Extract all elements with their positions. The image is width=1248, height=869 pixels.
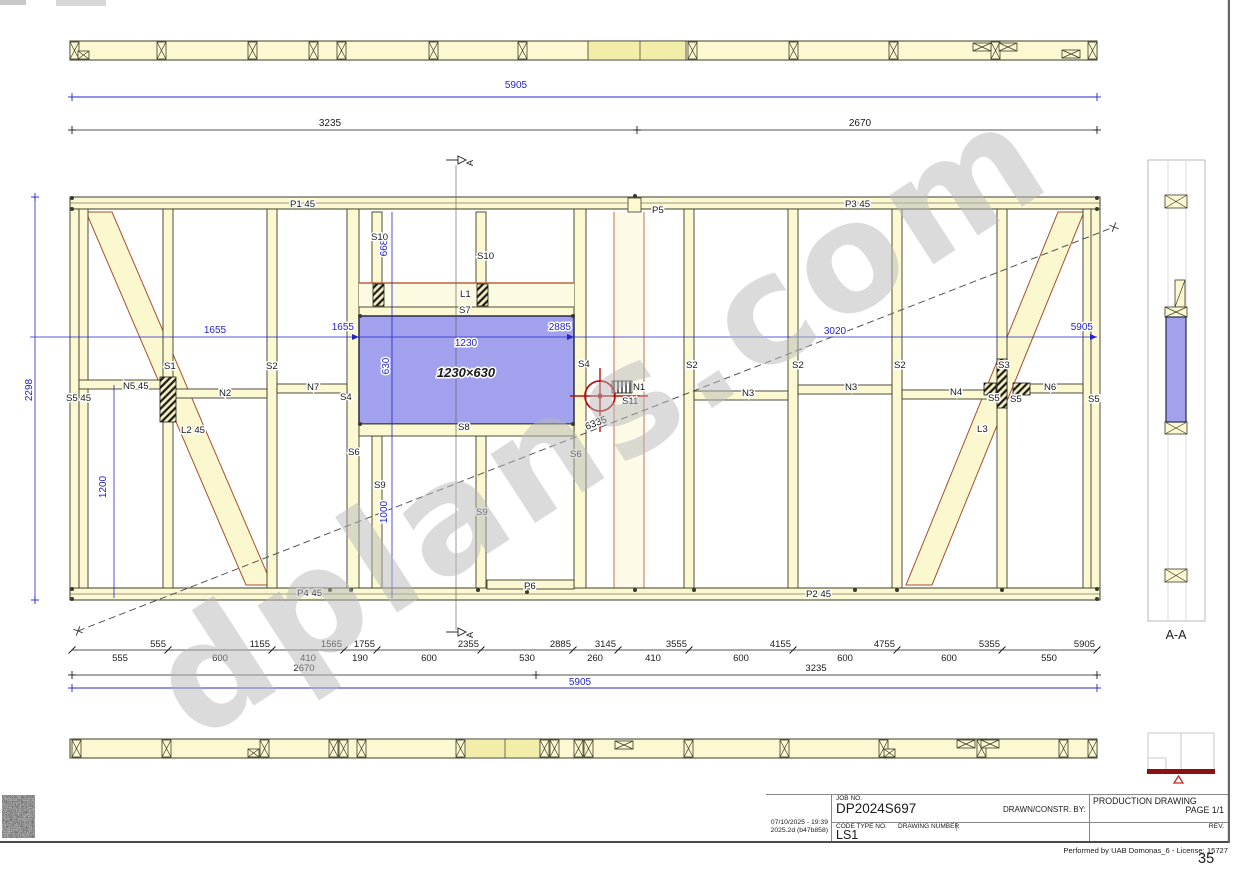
dim-label: 3235 — [319, 118, 342, 129]
fastener-dot — [476, 588, 480, 592]
fastener-dot — [633, 194, 637, 198]
dim-label: 2885 — [549, 322, 572, 333]
cripple-stud — [476, 212, 486, 285]
member-label: S2 — [266, 361, 278, 372]
cut-text-fragment — [0, 0, 26, 5]
cut-text-fragment — [56, 0, 106, 6]
dim-label: 3235 — [805, 663, 826, 674]
diagonal-end-cross — [72, 625, 85, 638]
member-label: L2 45 — [181, 425, 205, 436]
member-label: S9 — [476, 507, 488, 518]
member-label: P2 45 — [806, 589, 831, 600]
fastener-dot — [1095, 207, 1099, 211]
dim-label: 630 — [381, 357, 392, 374]
dim-label: 600 — [941, 653, 957, 664]
hatched-block — [160, 377, 176, 422]
drawing-canvas: AA 6335590532352670165516551230288530205… — [0, 0, 1248, 869]
fastener-dot — [633, 588, 637, 592]
window-size-label: 1230×630 — [437, 365, 496, 380]
dim-label: 1000 — [379, 500, 390, 523]
dim-label: 410 — [645, 653, 661, 664]
key-plan — [1147, 733, 1215, 783]
member-label: N6 — [1044, 382, 1056, 393]
bottom-plate-strip — [70, 739, 1097, 758]
fastener-dot — [571, 314, 575, 318]
member-label: S5 45 — [66, 393, 91, 404]
plate-member — [70, 41, 1097, 60]
member-label: S6 — [570, 449, 582, 460]
fastener-dot — [70, 196, 74, 200]
dim-label: 550 — [1041, 653, 1057, 664]
member-label: S2 — [792, 360, 804, 371]
member-label: N4 — [950, 387, 963, 398]
dim-label: 1755 — [354, 639, 375, 650]
member-label: N1 — [633, 382, 645, 393]
member-label: S10 — [371, 232, 388, 243]
dim-label: 600 — [212, 653, 228, 664]
fastener-dot — [328, 588, 332, 592]
wall-stud — [788, 209, 798, 588]
member-label: S3 — [998, 360, 1010, 371]
member-label: S10 — [477, 251, 494, 262]
splice-block — [628, 198, 641, 212]
dim-label: 2298 — [24, 378, 35, 401]
dim-label: 1655 — [332, 322, 355, 333]
dim-label: 3145 — [595, 639, 616, 650]
fastener-dot — [70, 587, 74, 591]
dim-label: 3555 — [666, 639, 687, 650]
license-note: Performed by UAB Domonas_6 - License: 15… — [928, 846, 1228, 855]
crosshair-dot — [598, 394, 603, 399]
dim-label: 4155 — [770, 639, 791, 650]
section-marker-letter: A — [465, 160, 475, 166]
fastener-dot — [1000, 588, 1004, 592]
drawing-sheet: AA 6335590532352670165516551230288530205… — [0, 0, 1248, 869]
dim-label: 600 — [837, 653, 853, 664]
noggin — [694, 391, 788, 400]
member-label: S2 — [686, 360, 698, 371]
member-label: L3 — [977, 424, 988, 435]
member-label: S4 — [340, 392, 352, 403]
section-view — [1148, 160, 1205, 621]
dim-label: 1565 — [321, 639, 342, 650]
member-label: S5 — [988, 393, 1000, 404]
fastener-dot — [70, 207, 74, 211]
dim-label: 2670 — [849, 118, 872, 129]
fastener-dot — [1095, 597, 1099, 601]
wall-stud — [892, 209, 902, 588]
overlays: AA — [72, 0, 1229, 843]
frame-geometry — [70, 41, 1215, 783]
dim-label: 5905 — [1074, 639, 1095, 650]
noise-stamp — [2, 795, 35, 838]
dim-label: 1230 — [455, 338, 478, 349]
wall-stud — [267, 209, 277, 588]
member-label: S1 — [164, 361, 176, 372]
member-label: N2 — [219, 388, 231, 399]
fastener-dot — [349, 588, 353, 592]
dim-label: 3020 — [824, 326, 847, 337]
member-label: L1 — [460, 289, 471, 300]
wall-stud — [574, 209, 586, 588]
member-label: S9 — [374, 480, 386, 491]
dim-label: 600 — [733, 653, 749, 664]
plate-member — [70, 739, 1097, 758]
member-label: P1 45 — [290, 199, 315, 210]
dim-label: 600 — [421, 653, 437, 664]
fastener-dot — [70, 597, 74, 601]
member-label: N5 45 — [123, 381, 149, 392]
hatched-block — [373, 284, 384, 306]
page-number: 35 — [1198, 851, 1214, 867]
fastener-dot — [1095, 587, 1099, 591]
dim-label: 260 — [587, 653, 603, 664]
dim-label: 1655 — [204, 325, 227, 336]
dim-label: 190 — [352, 653, 368, 664]
fastener-dot — [895, 588, 899, 592]
member-label: N3 — [742, 388, 754, 399]
plate-segment-highlight — [462, 739, 540, 758]
dim-label: 1155 — [250, 639, 270, 650]
fastener-dot — [571, 422, 575, 426]
key-plan-pointer-icon — [1174, 776, 1183, 783]
dim-label: 2355 — [458, 639, 479, 650]
wall-stud — [684, 209, 694, 588]
member-label: P4 45 — [297, 588, 322, 599]
dim-label: 5905 — [505, 80, 528, 91]
member-label: S7 — [459, 305, 471, 316]
dim-label: 555 — [150, 639, 166, 650]
dim-label: 5355 — [979, 639, 1000, 650]
fastener-dot — [358, 422, 362, 426]
member-label: P6 — [524, 581, 536, 592]
member-label: P3 45 — [845, 199, 870, 210]
dim-label: 1200 — [98, 475, 109, 498]
plate-segment-highlight — [588, 41, 686, 60]
member-label: S5 — [1010, 394, 1022, 405]
diagonal-dim-label: 6335 — [584, 414, 609, 432]
dim-label: 555 — [112, 653, 128, 664]
member-label: S6 — [348, 447, 360, 458]
fastener-dot — [692, 588, 696, 592]
dim-label: 5905 — [569, 677, 592, 688]
diagonal-end-cross — [1108, 221, 1121, 234]
member-label: S2 — [894, 360, 906, 371]
top-plate-strip — [70, 41, 1097, 60]
member-label: S5 — [1088, 394, 1100, 405]
member-label: S4 — [578, 359, 590, 370]
fastener-dot — [1095, 196, 1099, 200]
section-window — [1166, 317, 1186, 422]
dim-label: 530 — [519, 653, 535, 664]
hatched-block — [477, 284, 488, 306]
dim-label: 2670 — [293, 663, 314, 674]
member-label: S11 — [622, 396, 638, 407]
section-title: A-A — [1166, 628, 1188, 642]
member-label: P5 — [652, 205, 664, 216]
fastener-dot — [358, 314, 362, 318]
member-label: N7 — [307, 382, 319, 393]
member-label: N3 — [845, 382, 857, 393]
section-marker-letter: A — [465, 632, 475, 638]
fastener-dot — [853, 588, 857, 592]
member-label: S8 — [458, 422, 470, 433]
key-plan-active-wall — [1147, 769, 1215, 774]
dim-label: 5905 — [1071, 322, 1094, 333]
dim-label: 2885 — [550, 639, 571, 650]
dim-label: 4755 — [874, 639, 895, 650]
noggin — [79, 380, 163, 389]
